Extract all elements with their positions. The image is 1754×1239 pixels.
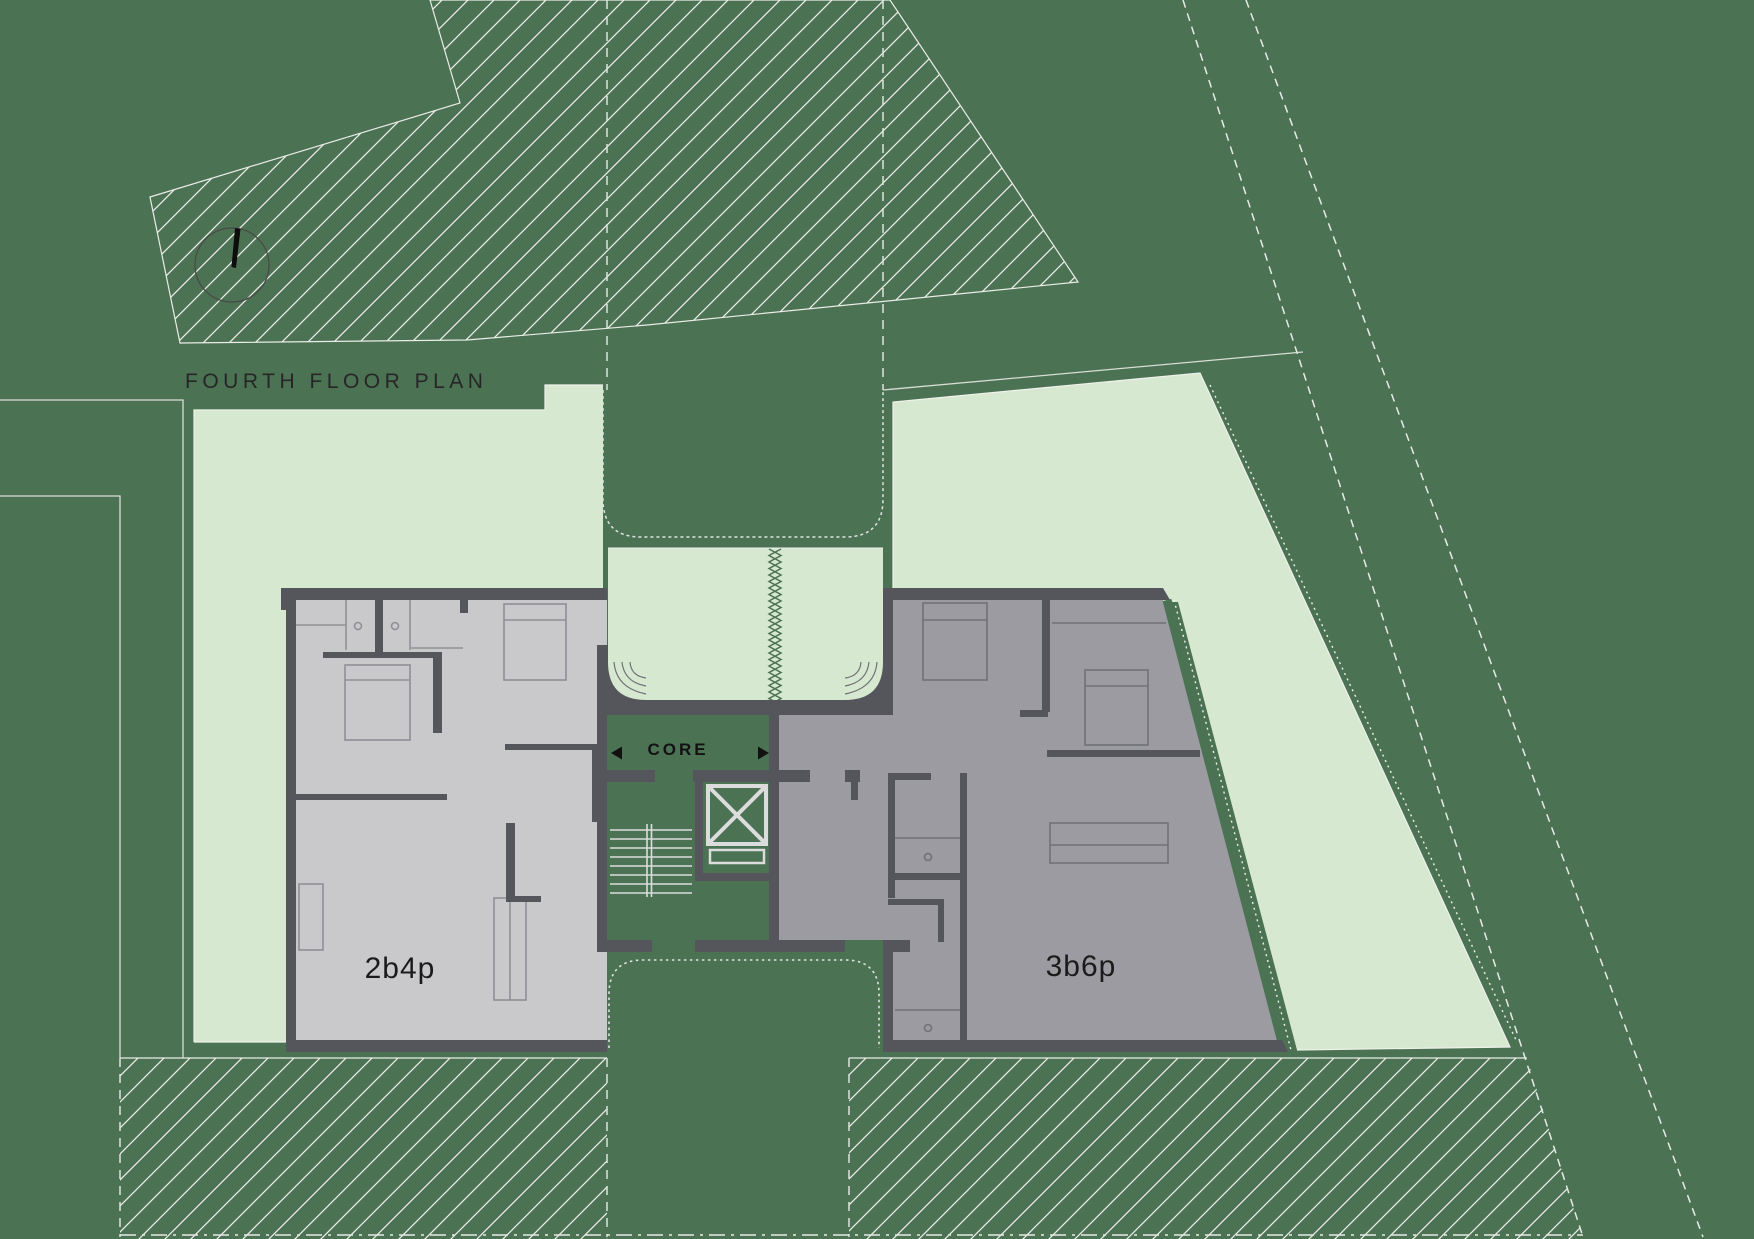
unit-2b4p-label: 2b4p	[365, 952, 436, 985]
wall-3b6p-top	[883, 588, 1170, 600]
wall-2b4p-top	[281, 588, 607, 600]
wall-2b4p-left	[286, 600, 296, 1042]
unit-3b6p-hall	[779, 715, 893, 940]
wall-2b4p-bottom	[286, 1040, 607, 1052]
unit-2b4p-floor	[296, 600, 607, 1042]
floor-plan-drawing: CORE 2b4p 3b6p FOURTH FLOOR PLAN	[0, 0, 1754, 1239]
wall-3b6p-left	[883, 600, 893, 660]
unit-3b6p-label: 3b6p	[1046, 950, 1117, 983]
unit-2b4p	[294, 600, 607, 1042]
core-label: CORE	[647, 740, 708, 759]
hatched-area-bottom-left	[120, 1058, 607, 1239]
floor-plan-page: CORE 2b4p 3b6p FOURTH FLOOR PLAN	[0, 0, 1754, 1239]
page-title: FOURTH FLOOR PLAN	[185, 370, 487, 393]
balcony-deck	[608, 548, 883, 700]
wall-3b6p-bottom	[883, 1040, 1288, 1052]
hatched-area-bottom-right	[849, 1058, 1583, 1239]
